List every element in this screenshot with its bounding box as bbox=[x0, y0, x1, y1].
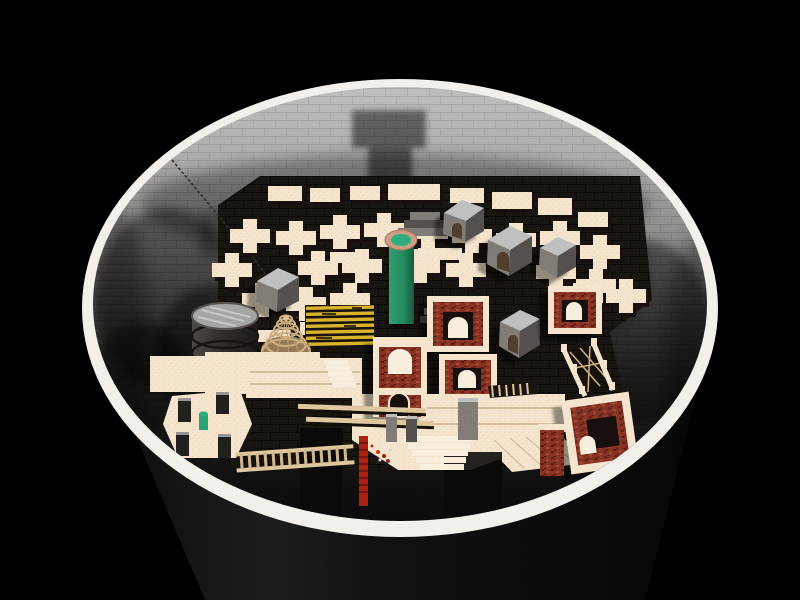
rendered-scene bbox=[0, 0, 800, 600]
pit-scene-canvas bbox=[0, 0, 800, 600]
